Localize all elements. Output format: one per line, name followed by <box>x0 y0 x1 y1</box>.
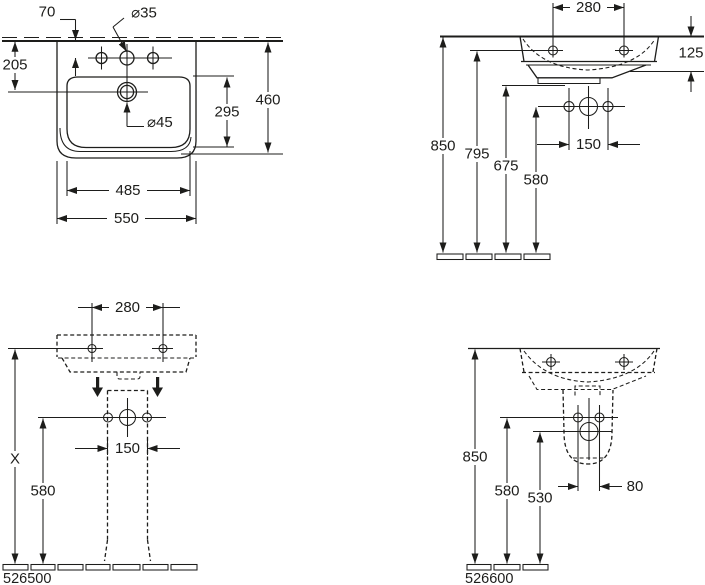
dim-drain-setback-label: 205 <box>2 57 27 74</box>
basin-profile <box>440 37 704 84</box>
dim-supply-height: 580 <box>491 419 523 564</box>
dim-rim-height: 850 <box>459 350 491 564</box>
dim-width-label: 550 <box>114 210 139 227</box>
dim-supply-height: 580 <box>520 108 552 253</box>
supply-holes <box>500 398 618 491</box>
plan-view: 70 ⌀35 205 ⌀45 295 <box>0 4 284 228</box>
dim-waste-height: 675 <box>490 87 522 253</box>
dim-fixing-height: 795 <box>461 52 493 253</box>
article-number-pedestal: 526500 <box>3 571 51 585</box>
fixing-holes <box>542 354 633 370</box>
dim-waste-height: 530 <box>524 433 556 564</box>
dim-supply-height-label: 580 <box>30 483 55 500</box>
mounting-direction-arrows <box>92 377 163 397</box>
dim-drain-setback: 205 <box>0 42 30 90</box>
dim-height-x: X <box>5 350 25 564</box>
drain-hole <box>8 83 148 102</box>
dim-inner-depth: 295 <box>193 76 243 147</box>
dim-drain-dia-label: ⌀45 <box>147 114 173 131</box>
dim-supply-height: 580 <box>27 419 59 564</box>
dim-supply-centres-label: 150 <box>576 136 601 153</box>
semi-pedestal-view: 850 580 530 80 526600 <box>459 349 660 585</box>
dim-waste-offset-label: 80 <box>627 478 644 495</box>
dim-supply-centres-label: 150 <box>115 440 140 457</box>
dim-fixing-height-label: 795 <box>464 146 489 163</box>
dim-rim-drop: 125 <box>630 16 704 92</box>
dim-inner-width-label: 485 <box>115 182 140 199</box>
supply-holes <box>38 398 166 437</box>
dim-waste-height-label: 675 <box>493 158 518 175</box>
dim-supply-height-label: 580 <box>523 172 548 189</box>
dim-rim-height: 850 <box>427 38 459 253</box>
floor-line <box>3 565 197 571</box>
dim-inner-depth-label: 295 <box>214 104 239 121</box>
wall-line <box>2 38 283 42</box>
basin-outline-dashed <box>520 349 657 396</box>
dim-tap-hole-dia: ⌀35 <box>113 5 157 52</box>
front-elevation-view: 280 125 150 850 795 675 <box>427 0 704 260</box>
dim-supply-centres: 150 <box>537 136 640 153</box>
dim-waste-offset: 80 <box>558 478 643 495</box>
dim-rim-drop-label: 125 <box>678 45 703 62</box>
floor-line <box>437 254 550 260</box>
dim-supply-centres: 150 <box>75 438 180 457</box>
pedestal-view: 280 X <box>3 299 197 585</box>
floor-line <box>467 565 548 571</box>
semi-pedestal-outline-dashed <box>563 390 613 464</box>
drawing-canvas: 70 ⌀35 205 ⌀45 295 <box>0 0 705 585</box>
supply-holes <box>502 86 625 151</box>
dim-rim-height-label: 850 <box>462 449 487 466</box>
dim-tap-hole-dia-label: ⌀35 <box>131 5 157 22</box>
basin-outline-dashed <box>57 335 196 379</box>
dim-height-x-label: X <box>10 451 20 468</box>
dim-supply-height-label: 580 <box>494 483 519 500</box>
fixing-holes <box>8 345 173 353</box>
dim-fixing-centres-label: 280 <box>576 0 601 16</box>
fixing-holes <box>470 44 633 58</box>
dim-depth-label: 460 <box>255 92 280 109</box>
dim-drain-dia: ⌀45 <box>127 103 173 132</box>
dim-rim-height-label: 850 <box>430 138 455 155</box>
washbasin-technical-drawing: 70 ⌀35 205 ⌀45 295 <box>0 0 705 585</box>
article-number-semi-pedestal: 526600 <box>465 571 513 585</box>
dim-wall-offset-label: 70 <box>39 4 56 21</box>
dim-fixing-centres-label: 280 <box>115 299 140 316</box>
dim-waste-height-label: 530 <box>527 490 552 507</box>
